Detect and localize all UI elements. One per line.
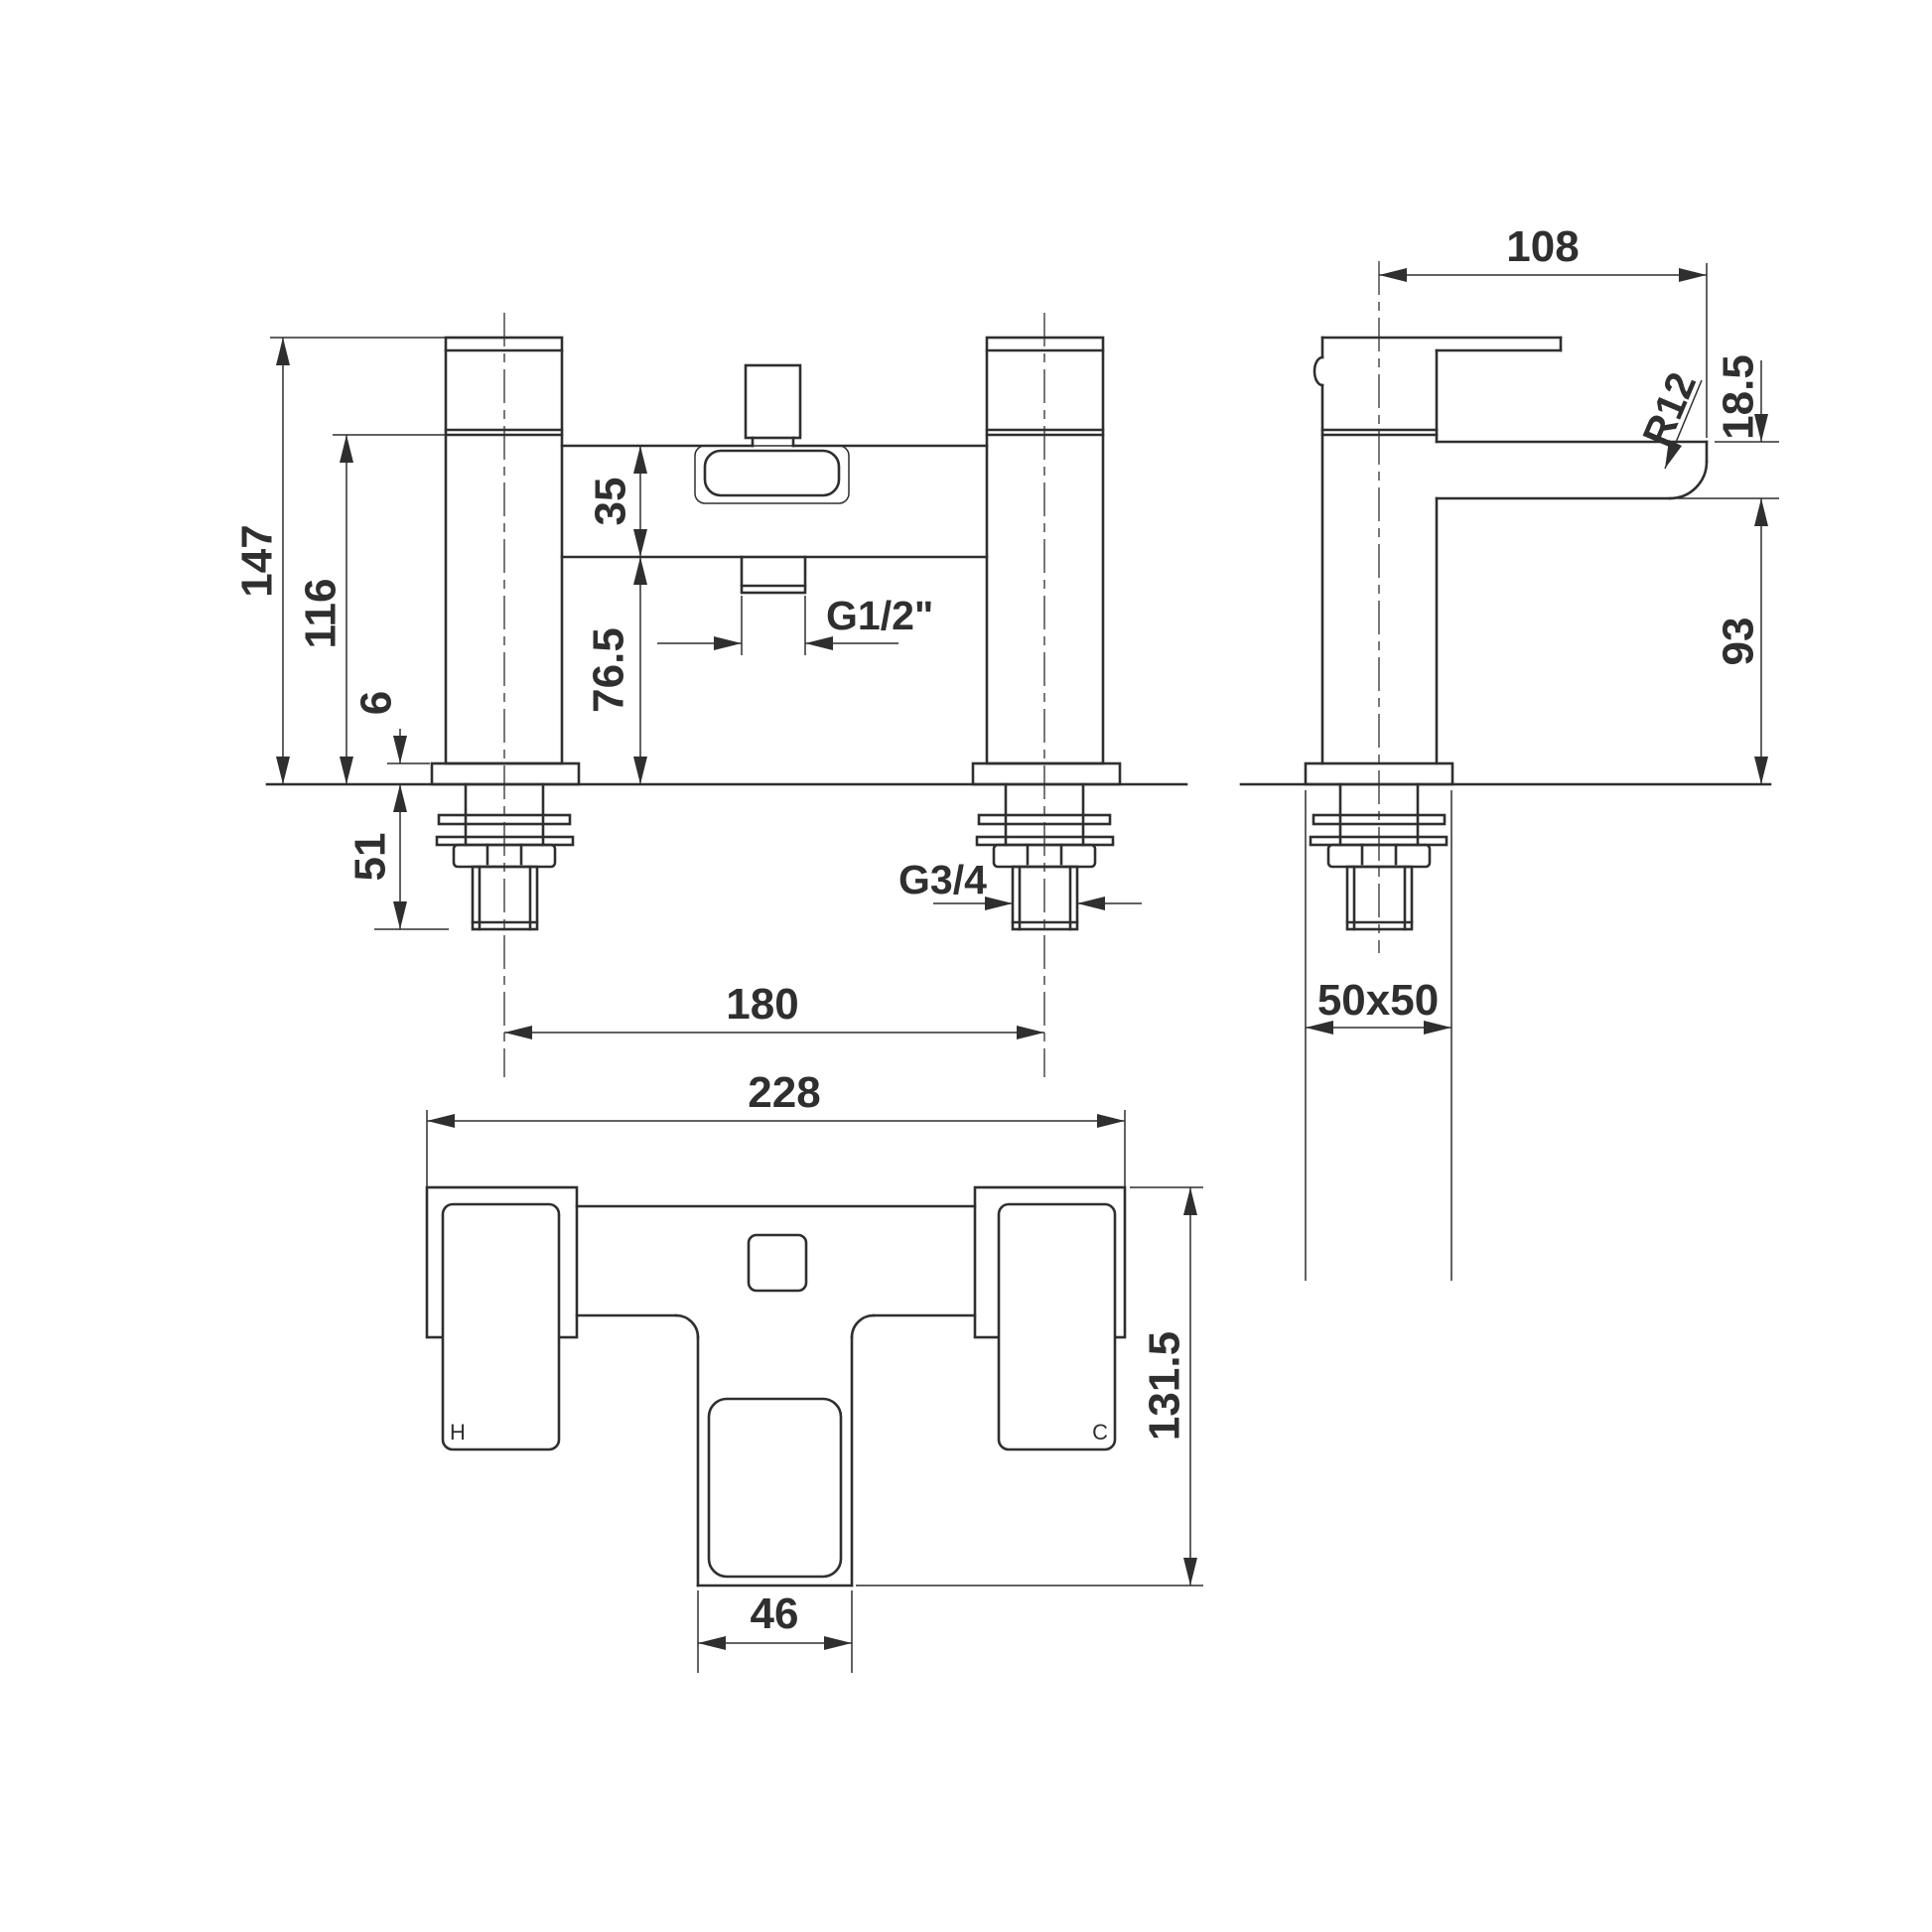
dim-label-76-5: 76.5 bbox=[584, 627, 632, 713]
plan-cold-handle bbox=[999, 1204, 1115, 1449]
dim-label-r12: R12 bbox=[1633, 366, 1705, 453]
spout-mesh-plate bbox=[695, 446, 849, 503]
plan-handles: H C bbox=[443, 1204, 1115, 1449]
dim-shower-hose-thread: G1/2" bbox=[657, 593, 933, 655]
dim-below-deck-length: 51 bbox=[345, 784, 449, 929]
dim-tap-centres: 180 bbox=[504, 980, 1044, 1039]
dim-label-93: 93 bbox=[1714, 618, 1762, 666]
dim-label-147: 147 bbox=[232, 524, 281, 597]
dim-overall-height: 147 bbox=[232, 338, 446, 784]
dim-body-depth: 35 76.5 bbox=[584, 446, 647, 784]
dim-base-plate-thickness: 6 bbox=[351, 691, 430, 763]
dim-label-18-5: 18.5 bbox=[1714, 354, 1762, 440]
dim-label-108: 108 bbox=[1506, 222, 1579, 271]
dim-body-top-height: 116 bbox=[296, 435, 446, 784]
dim-label-180: 180 bbox=[726, 980, 798, 1029]
dim-label-116: 116 bbox=[296, 579, 345, 649]
dim-label-6: 6 bbox=[351, 691, 400, 715]
front-view: 147 116 35 76.5 6 bbox=[232, 313, 1186, 1077]
dim-label-g12: G1/2" bbox=[826, 593, 933, 638]
hot-indicator-label: H bbox=[450, 1420, 466, 1445]
diverter-knob bbox=[746, 365, 800, 446]
dim-label-51: 51 bbox=[345, 833, 394, 882]
plan-spout bbox=[698, 1337, 852, 1586]
dim-label-46: 46 bbox=[751, 1589, 799, 1638]
left-base-plate bbox=[432, 763, 579, 784]
dim-spout-lip-and-height: 18.5 93 bbox=[1678, 354, 1779, 784]
plan-hot-handle bbox=[443, 1204, 559, 1449]
technical-drawing: 147 116 35 76.5 6 bbox=[0, 0, 1932, 1932]
dim-label-35: 35 bbox=[586, 478, 634, 526]
drawing-sheet: 147 116 35 76.5 6 bbox=[0, 0, 1932, 1932]
right-base-plate bbox=[973, 763, 1120, 784]
dim-label-131-5: 131.5 bbox=[1140, 1331, 1188, 1441]
plan-diverter-knob bbox=[749, 1235, 806, 1291]
dim-label-228: 228 bbox=[748, 1068, 820, 1117]
dim-spout-radius: R12 bbox=[1633, 366, 1705, 469]
dim-spout-width: 46 bbox=[698, 1589, 852, 1673]
dim-label-50x50: 50x50 bbox=[1317, 976, 1439, 1025]
shower-hose-outlet bbox=[742, 557, 805, 593]
cold-indicator-label: C bbox=[1092, 1420, 1108, 1445]
plan-body-bar bbox=[577, 1206, 975, 1337]
dim-label-g34: G3/4 bbox=[898, 857, 987, 902]
side-view: 108 18.5 93 R12 50x50 bbox=[1241, 222, 1779, 1281]
plan-view: H C 228 46 131.5 bbox=[427, 1068, 1203, 1673]
